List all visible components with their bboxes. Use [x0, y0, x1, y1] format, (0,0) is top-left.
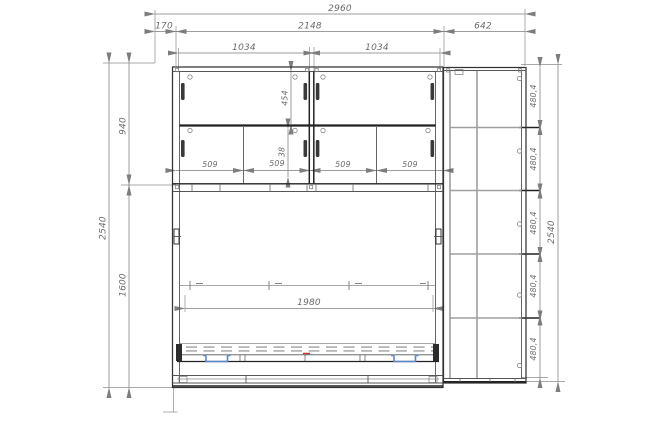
- mount-bracket-icons: [203, 356, 419, 362]
- band-fitting-ticks: [192, 184, 428, 192]
- dim-right-section-4: 480,4: [529, 274, 538, 297]
- bed-corner-left: [176, 344, 182, 361]
- bed-frame-ticks: [240, 355, 365, 361]
- dim-right-section-2: 480,4: [529, 147, 538, 170]
- dim-shelf-left: 1034: [232, 43, 256, 53]
- dim-right-section-3: 480,4: [529, 211, 538, 234]
- dim-upper-height: 940: [119, 117, 129, 135]
- dim-shelf-right: 1034: [365, 43, 389, 53]
- right-shelf-pin-holes: [517, 76, 521, 367]
- dim-top-row-height: 454: [281, 90, 290, 105]
- dim-left-total-height: 2540: [99, 216, 109, 240]
- dim-compartment-3: 509: [335, 160, 350, 169]
- drawing-canvas: 2960 170 2148 642 1034 1034 2540 940 160…: [0, 0, 667, 440]
- dim-compartment-4: 509: [402, 160, 417, 169]
- dim-body-width: 2148: [298, 22, 322, 32]
- main-cabinet: [173, 67, 444, 388]
- dimension-lines: [109, 14, 558, 388]
- dim-overall-width: 2960: [328, 4, 352, 14]
- dim-bed-width: 1980: [297, 298, 321, 308]
- dim-compartment-1: 509: [202, 160, 217, 169]
- dim-small-height: 38: [278, 147, 287, 157]
- hinge-icons: [181, 83, 434, 157]
- dim-right-total-height: 2540: [547, 220, 557, 244]
- furniture-technical-drawing: 2960 170 2148 642 1034 1034 2540 940 160…: [0, 0, 667, 440]
- dim-right-section-5: 480,4: [529, 337, 538, 360]
- bed-corner-right: [433, 344, 439, 361]
- bed-section: [163, 229, 443, 412]
- dim-compartment-2: 509: [269, 159, 284, 168]
- dim-right-section-1: 480,4: [529, 84, 538, 107]
- dim-offset: 170: [155, 22, 173, 32]
- dimension-labels: 2960 170 2148 642 1034 1034 2540 940 160…: [99, 4, 558, 361]
- dim-lower-height: 1600: [119, 273, 129, 297]
- right-cabinet: [444, 68, 527, 384]
- dim-side-width: 642: [474, 22, 492, 32]
